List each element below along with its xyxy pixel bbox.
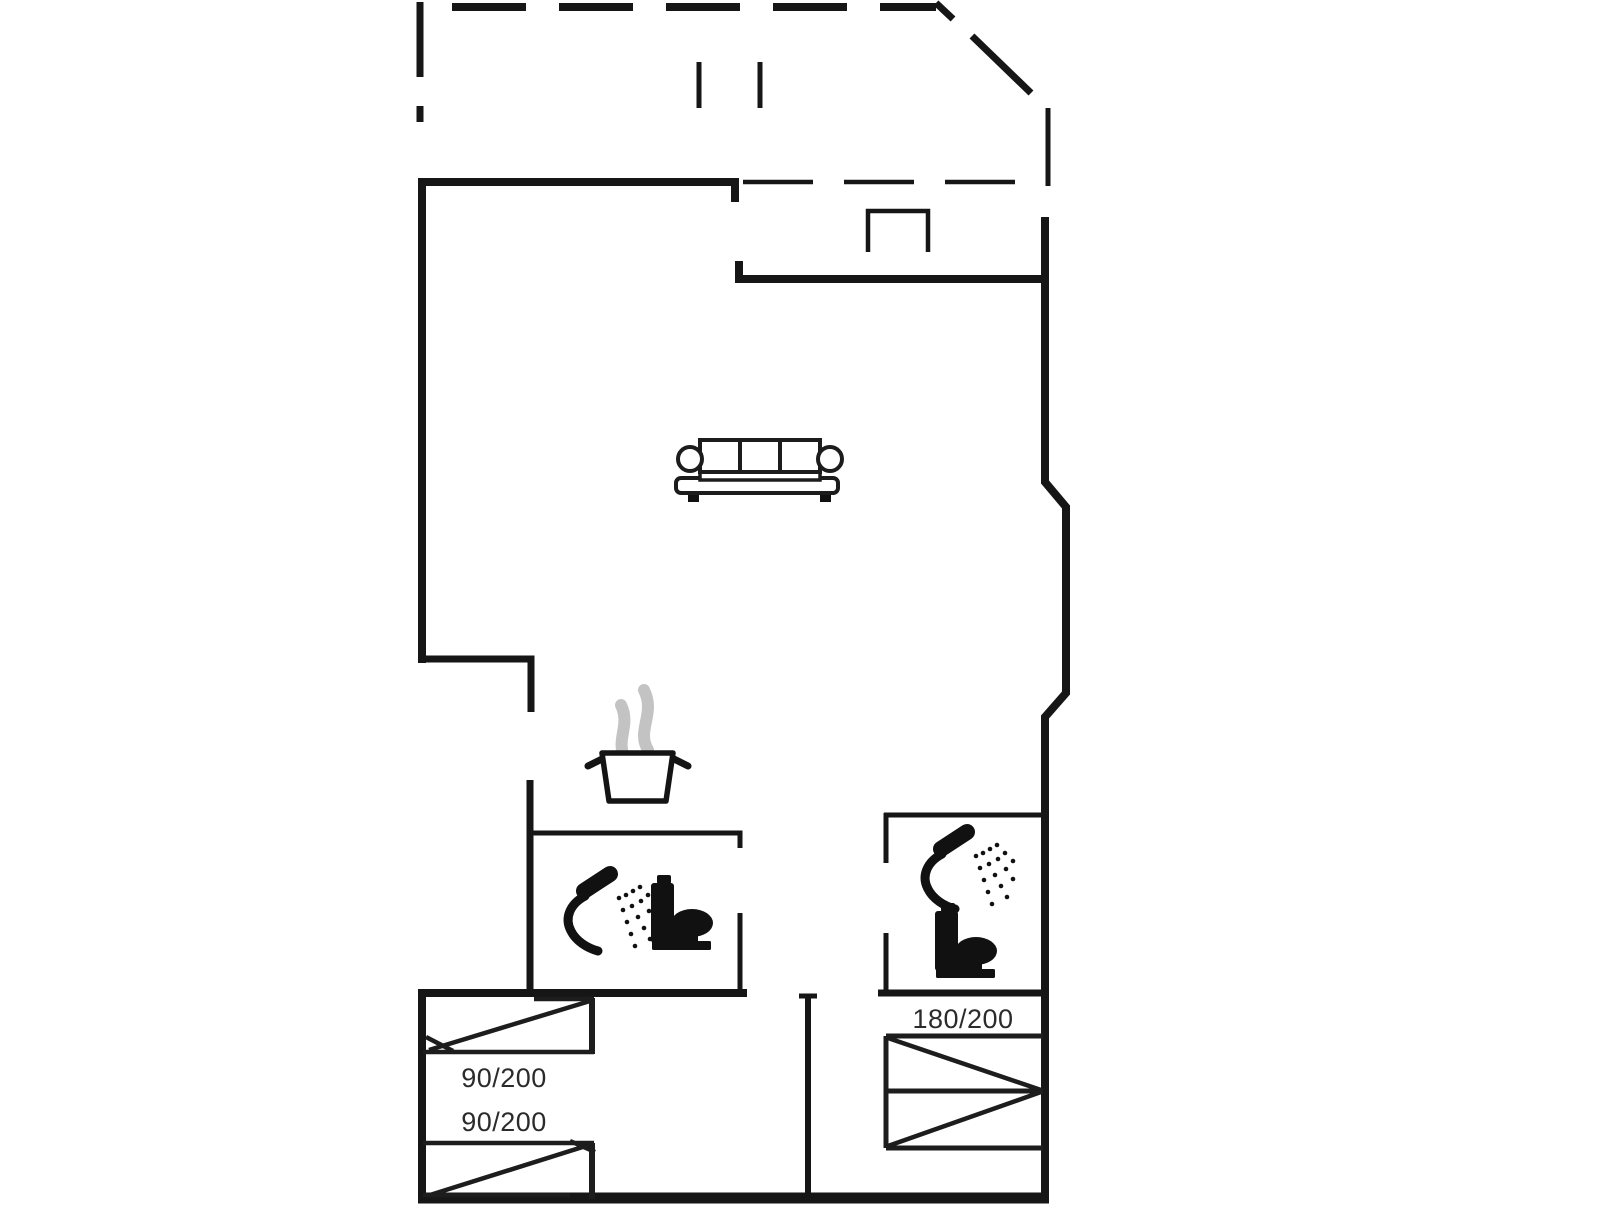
double-bed-icon [886, 1036, 1043, 1148]
fireplace-niche [868, 211, 928, 252]
terrace-diagonal-dash [972, 36, 1031, 93]
terrace-corner-dash [936, 3, 953, 19]
sofa-cushion [740, 440, 780, 472]
sofa-icon [676, 440, 842, 502]
floor-plan: 90/200 90/200 180/200 [0, 0, 1606, 1205]
bed-size-label-3: 180/200 [912, 1004, 1013, 1034]
wall-kitchen-step [418, 659, 531, 712]
floor-plan-svg: 90/200 90/200 180/200 [0, 0, 1606, 1205]
single-bed-icon-1 [423, 998, 594, 1054]
bed-size-label-2: 90/200 [461, 1107, 547, 1137]
steam-wisp-right [644, 690, 648, 750]
sofa-arm-right [818, 447, 842, 471]
wall-right-with-bay [1045, 217, 1066, 1200]
sofa-arm-left [678, 447, 702, 471]
steam-icon [621, 690, 648, 758]
steam-wisp-left [621, 705, 625, 758]
cooking-pot-icon [588, 753, 688, 801]
shower-icon-bath1 [568, 874, 658, 951]
wall-entry [739, 261, 1042, 279]
wall-bath1-top [530, 833, 740, 848]
sofa-cushion [780, 440, 820, 472]
pot-body [602, 753, 673, 801]
shower-icon-bath2 [925, 832, 1015, 909]
sofa-cushion [700, 440, 740, 472]
toilet-icon-bath2 [935, 903, 997, 978]
single-bed-icon-2 [423, 1141, 595, 1199]
terrace-dashed-outline [420, 2, 1048, 252]
wall-left-upper-and-living-top [422, 182, 739, 663]
bed-size-label-1: 90/200 [461, 1063, 547, 1093]
toilet-icon-bath1 [651, 875, 713, 950]
